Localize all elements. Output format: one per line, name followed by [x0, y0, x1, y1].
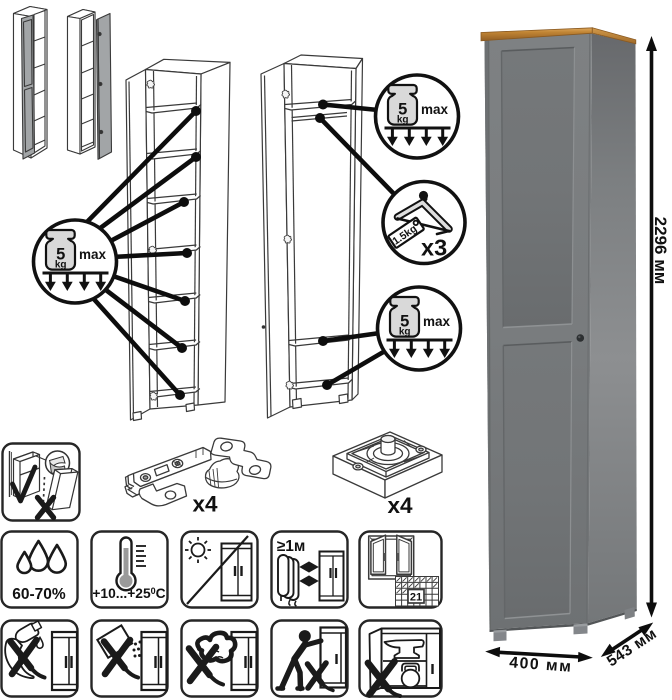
svg-text:21: 21 — [410, 592, 422, 604]
svg-text:2296 мм: 2296 мм — [651, 217, 670, 285]
svg-text:x3: x3 — [421, 235, 447, 261]
svg-text:≥1м: ≥1м — [277, 538, 306, 555]
svg-text:60-70%: 60-70% — [12, 586, 66, 603]
svg-text:x4: x4 — [192, 492, 218, 517]
svg-text:x4: x4 — [387, 493, 413, 518]
